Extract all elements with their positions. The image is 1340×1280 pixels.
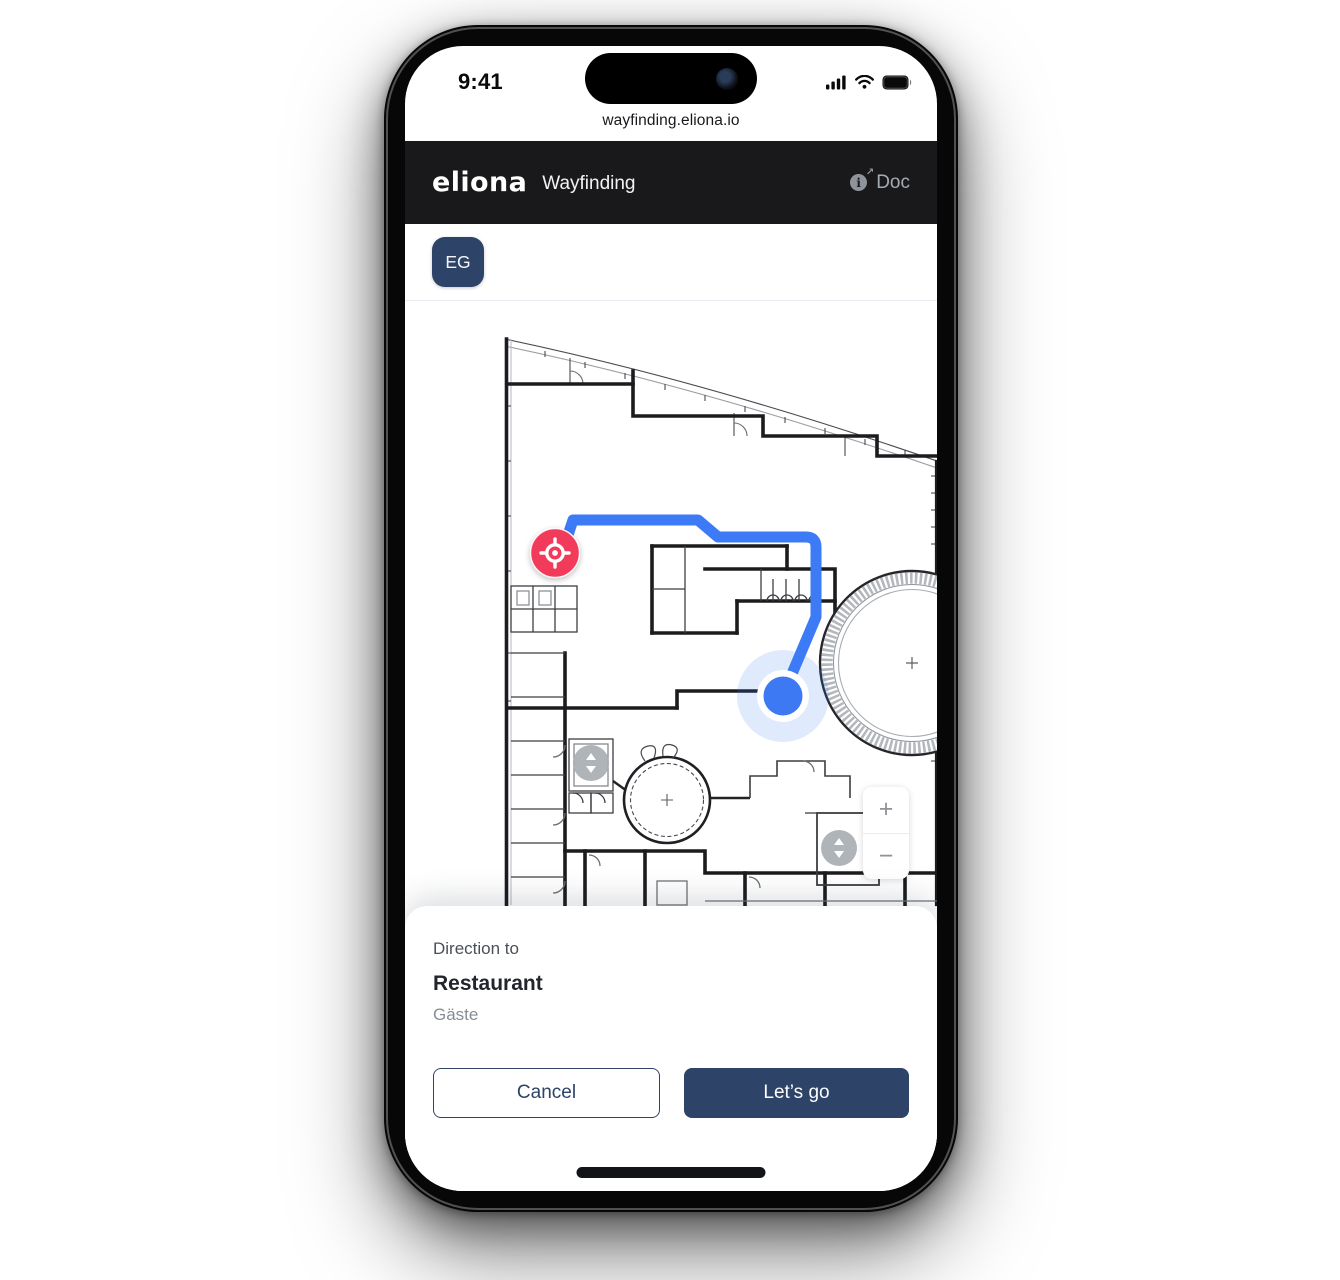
- app-header: eliona Wayfinding i Doc: [405, 141, 937, 224]
- home-indicator[interactable]: [577, 1167, 766, 1178]
- lets-go-button[interactable]: Let’s go: [684, 1068, 909, 1118]
- direction-to-label: Direction to: [433, 938, 909, 960]
- floor-selector-bar: EG: [405, 224, 937, 301]
- dynamic-island: [585, 53, 757, 104]
- status-icons: [826, 75, 913, 90]
- destination-marker: [757, 670, 809, 722]
- phone-frame: 9:41: [384, 25, 958, 1212]
- status-bar: 9:41: [405, 46, 937, 112]
- map-zoom-control: + −: [863, 787, 909, 879]
- destination-name: Restaurant: [433, 970, 909, 997]
- clock: 9:41: [458, 69, 503, 95]
- info-external-icon: i: [850, 174, 867, 191]
- app-title: Wayfinding: [542, 173, 635, 195]
- origin-pin: [531, 529, 580, 578]
- phone-screen: 9:41: [405, 46, 937, 1191]
- elevator-icon-2: [821, 830, 857, 866]
- floor-button-eg[interactable]: EG: [432, 237, 484, 287]
- doc-link[interactable]: i Doc: [850, 172, 910, 194]
- battery-icon: [882, 75, 913, 90]
- elevator-icon-1: [573, 745, 609, 781]
- signal-icon: [826, 75, 847, 90]
- doc-label: Doc: [876, 172, 910, 194]
- zoom-in-button[interactable]: +: [863, 787, 909, 833]
- stage: 9:41: [0, 0, 1340, 1280]
- round-hall: [820, 571, 937, 755]
- direction-bottom-sheet: Direction to Restaurant Gäste Cancel Let…: [405, 906, 937, 1191]
- cancel-button[interactable]: Cancel: [433, 1068, 660, 1118]
- round-room: [624, 744, 710, 843]
- front-camera: [716, 68, 738, 90]
- sheet-buttons: Cancel Let’s go: [433, 1068, 909, 1118]
- zoom-out-button[interactable]: −: [863, 834, 909, 880]
- wifi-icon: [855, 75, 874, 89]
- eliona-logo: eliona: [432, 167, 527, 198]
- browser-url[interactable]: wayfinding.eliona.io: [405, 112, 937, 141]
- destination-detail: Gäste: [433, 1004, 909, 1026]
